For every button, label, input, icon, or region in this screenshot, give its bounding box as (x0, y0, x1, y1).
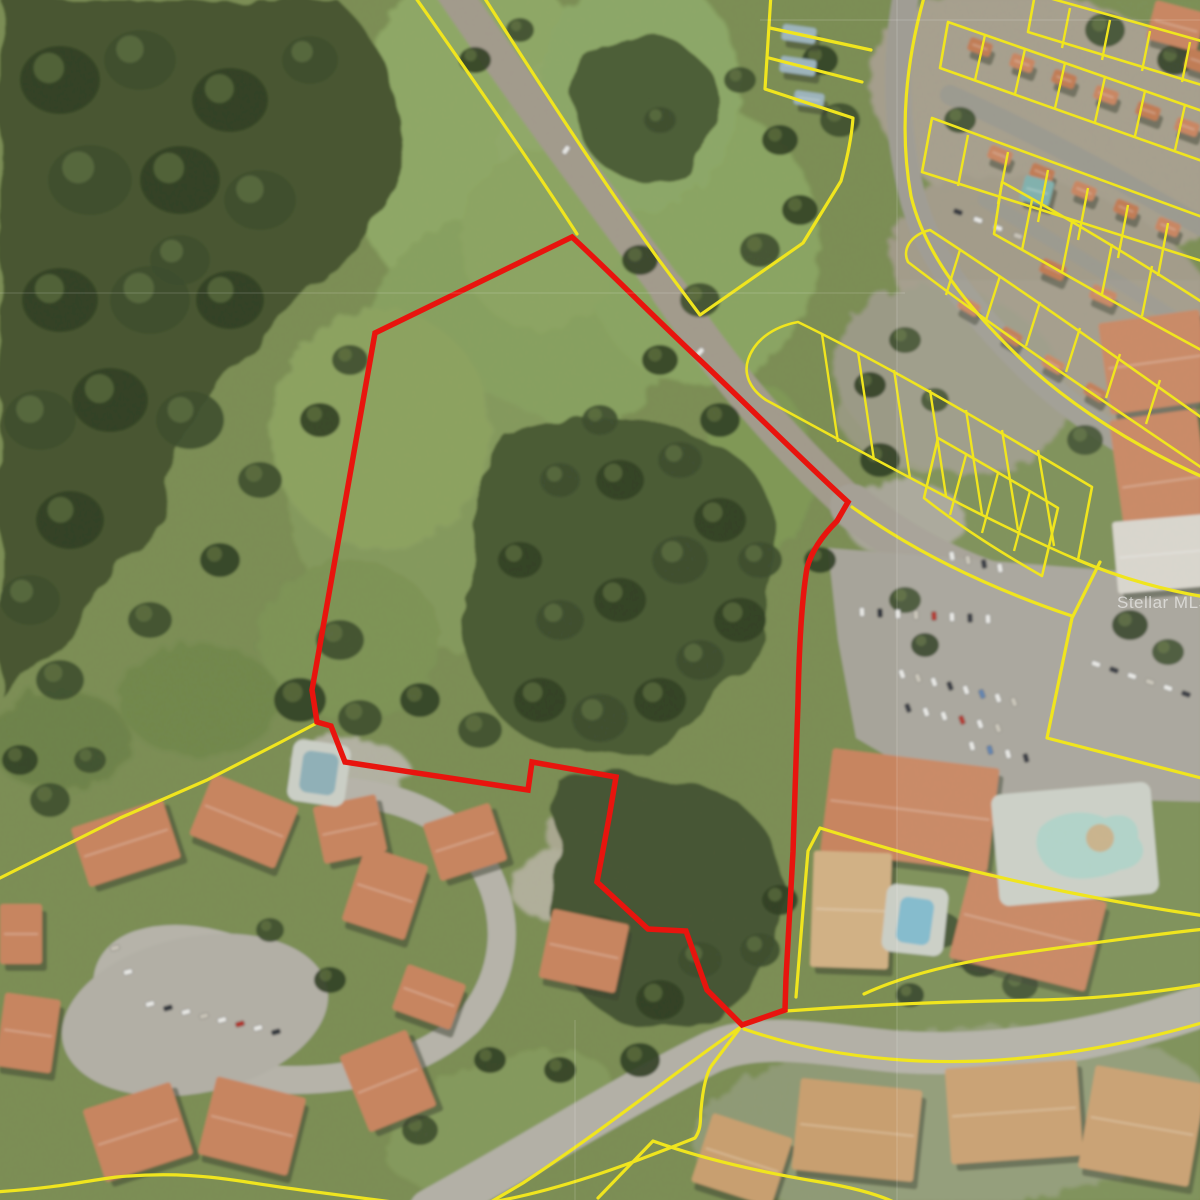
tree-canopy (192, 68, 268, 132)
building (0, 904, 47, 971)
tree-canopy (738, 542, 782, 578)
tree-canopy (714, 598, 766, 642)
tree-highlight (644, 984, 662, 1002)
tree-canopy (782, 195, 818, 225)
tree-highlight (505, 545, 522, 562)
tree-highlight (684, 644, 702, 662)
tree-highlight (307, 406, 322, 421)
tree-highlight (511, 20, 522, 31)
tree-canopy (156, 391, 224, 449)
tree-canopy (498, 542, 542, 578)
tree-canopy (540, 463, 580, 497)
tree-canopy (256, 918, 284, 942)
tree-highlight (208, 277, 234, 303)
tree-highlight (154, 153, 184, 183)
tree-canopy (620, 1043, 660, 1077)
tree-highlight (85, 374, 114, 403)
tree-highlight (628, 248, 642, 262)
tree-highlight (8, 748, 22, 762)
tree-highlight (135, 605, 152, 622)
tree-canopy (658, 442, 702, 478)
tree-canopy (400, 683, 440, 717)
tree-canopy (680, 283, 720, 317)
tree-canopy (652, 536, 708, 584)
tree-canopy (338, 700, 382, 736)
building (0, 992, 66, 1081)
parked-car (859, 607, 864, 616)
tree-canopy (724, 67, 756, 93)
tree-canopy (150, 235, 210, 285)
tree-canopy (2, 745, 38, 775)
building (810, 851, 897, 977)
map-render-layers (0, 0, 1200, 1200)
tree-highlight (464, 49, 476, 61)
tree-canopy (238, 462, 282, 498)
tree-canopy (572, 694, 628, 742)
tree-canopy (694, 498, 746, 542)
tree-highlight (547, 466, 562, 481)
tree-highlight (124, 273, 154, 303)
tree-highlight (283, 682, 303, 702)
tree-highlight (116, 36, 143, 63)
tree-highlight (665, 445, 682, 462)
tree-highlight (745, 545, 762, 562)
tree-canopy (582, 405, 618, 435)
ground-patch (120, 644, 280, 756)
tree-highlight (292, 41, 313, 62)
tree-highlight (662, 541, 683, 562)
listing-aerial-screenshot: Stellar MLS (0, 0, 1200, 1200)
tree-highlight (16, 396, 43, 423)
tree-highlight (768, 128, 782, 142)
tree-highlight (10, 580, 33, 603)
pool-southwest-water (298, 750, 339, 797)
tree-canopy (128, 602, 172, 638)
tree-highlight (44, 664, 62, 682)
tree-highlight (643, 682, 663, 702)
tree-highlight (604, 464, 622, 482)
tree-canopy (0, 575, 60, 625)
tree-highlight (788, 198, 802, 212)
tree-canopy (196, 271, 264, 329)
tree-highlight (649, 109, 661, 121)
tree-canopy (314, 967, 346, 993)
tree-canopy (700, 403, 740, 437)
tree-highlight (34, 53, 64, 83)
tree-highlight (236, 176, 263, 203)
tree-canopy (536, 600, 584, 640)
tree-highlight (160, 240, 183, 263)
tree-highlight (35, 274, 64, 303)
tree-canopy (458, 712, 502, 748)
tree-highlight (707, 406, 722, 421)
tree-highlight (465, 715, 482, 732)
tree-canopy (762, 125, 798, 155)
tree-canopy (48, 145, 132, 215)
tree-highlight (62, 151, 94, 183)
satellite-imagery (0, 0, 1200, 1200)
tree-canopy (860, 443, 900, 477)
tree-highlight (747, 936, 762, 951)
tree-canopy (636, 980, 684, 1020)
tree-canopy (36, 491, 104, 549)
tree-canopy (300, 403, 340, 437)
tree-canopy (634, 678, 686, 722)
tree-highlight (603, 582, 623, 602)
tree-canopy (22, 268, 98, 332)
tree-canopy (282, 36, 338, 84)
tree-highlight (207, 546, 222, 561)
tree-canopy (644, 107, 676, 133)
tree-canopy (200, 543, 240, 577)
tree-canopy (676, 640, 724, 680)
tree-highlight (723, 602, 743, 622)
tree-canopy (104, 30, 176, 90)
tree-highlight (523, 682, 543, 702)
tree-highlight (48, 497, 74, 523)
tree-canopy (544, 1057, 576, 1083)
tree-canopy (74, 747, 106, 773)
tree-highlight (544, 604, 562, 622)
tree-canopy (854, 372, 886, 398)
tree-highlight (319, 969, 331, 981)
aerial-parcel-map: Stellar MLS (0, 0, 1200, 1200)
ground-patch (270, 310, 490, 550)
tree-highlight (407, 686, 422, 701)
tree-canopy (224, 170, 296, 230)
tree-canopy (140, 146, 220, 214)
tree-highlight (37, 786, 52, 801)
tree-highlight (168, 397, 194, 423)
tree-highlight (627, 1046, 642, 1061)
tree-highlight (79, 749, 91, 761)
parked-car (877, 608, 882, 617)
tree-highlight (261, 920, 272, 931)
tree-highlight (205, 74, 234, 103)
tree-canopy (514, 678, 566, 722)
tree-highlight (588, 408, 602, 422)
tree-canopy (740, 933, 780, 967)
tree-canopy (332, 345, 368, 375)
tree-highlight (245, 465, 262, 482)
tree-canopy (594, 578, 646, 622)
stellar-mls-watermark: Stellar MLS (1117, 593, 1200, 612)
tree-canopy (36, 660, 84, 700)
tree-highlight (338, 348, 352, 362)
tree-canopy (20, 46, 100, 114)
tree-highlight (729, 69, 741, 81)
tree-highlight (549, 1059, 561, 1071)
tree-canopy (72, 368, 148, 432)
tree-highlight (324, 624, 342, 642)
tree-highlight (703, 502, 723, 522)
tree-canopy (4, 390, 76, 450)
tree-highlight (582, 699, 603, 720)
tree-highlight (648, 348, 662, 362)
tree-canopy (596, 460, 644, 500)
tree-canopy (30, 783, 70, 817)
tree-canopy (642, 345, 678, 375)
tree-canopy (474, 1047, 506, 1073)
tree-highlight (768, 888, 782, 902)
tree-highlight (345, 703, 362, 720)
tree-highlight (747, 236, 762, 251)
tree-highlight (479, 1049, 491, 1061)
